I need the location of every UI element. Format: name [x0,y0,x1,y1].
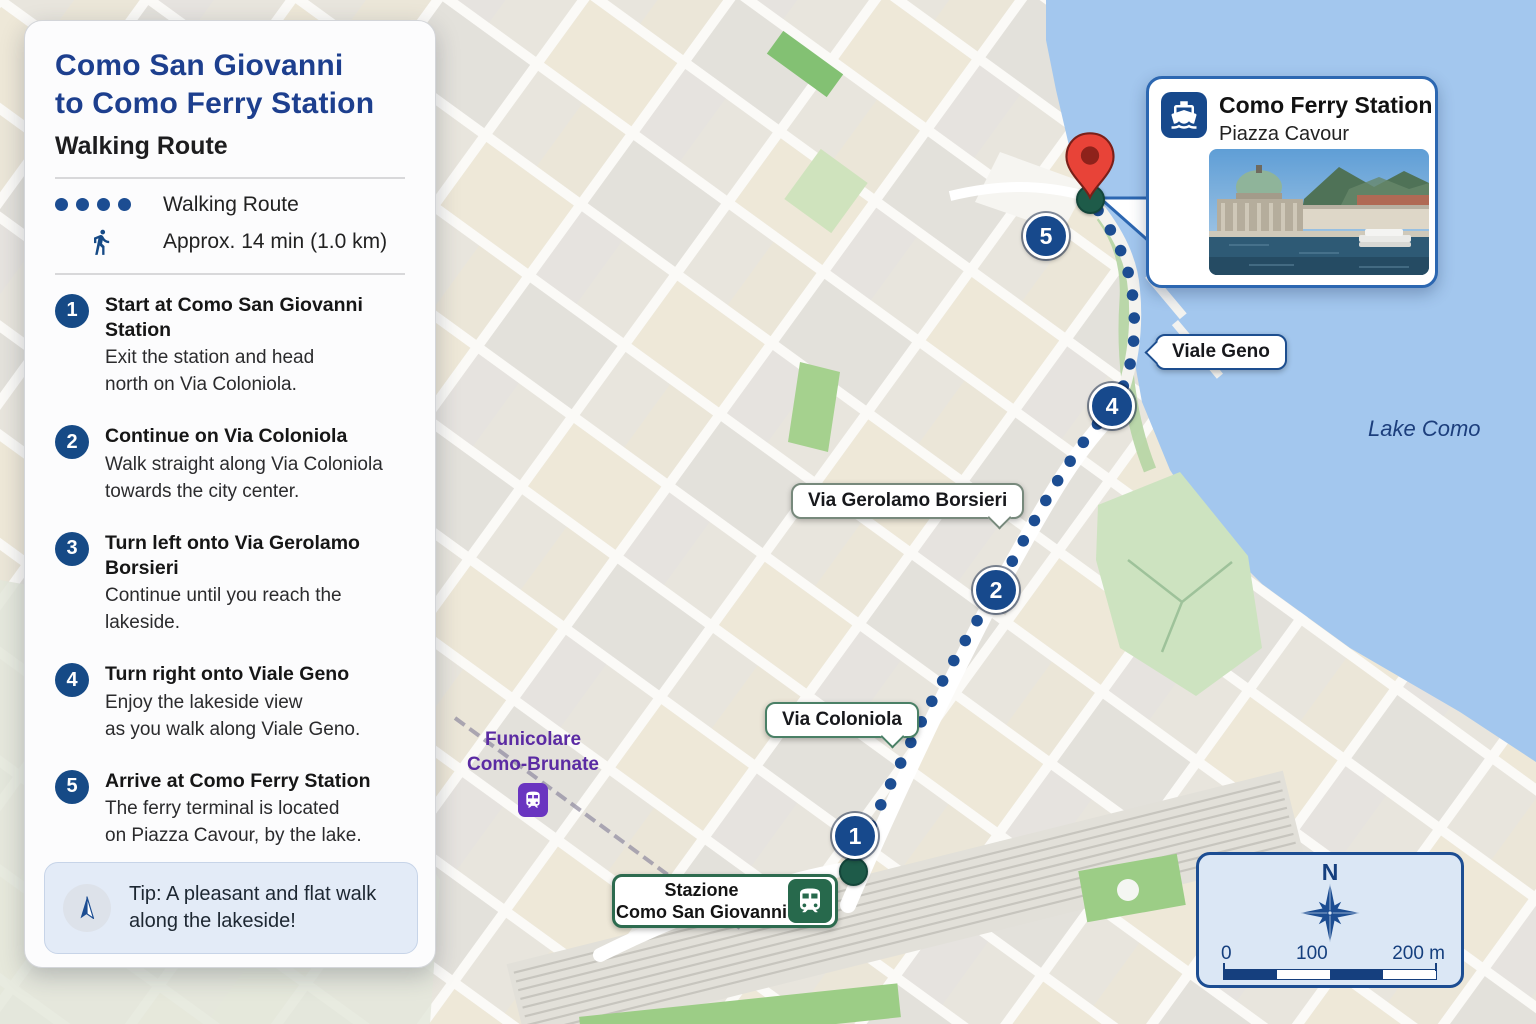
step-number-badge: 4 [55,663,89,697]
divider [55,273,405,275]
route-marker-2: 2 [973,567,1019,613]
step-item-5: 5 Arrive at Como Ferry Station The ferry… [55,769,405,850]
step-list: 1 Start at Como San Giovanni Station Exi… [55,293,405,850]
route-dots-icon [55,198,147,211]
step-item-4: 4 Turn right onto Viale Geno Enjoy the l… [55,662,405,743]
step-description: Continue until you reach the lakeside. [105,583,405,637]
route-start-dot [839,857,868,886]
stazione-label-line1: Stazione [615,879,788,902]
navigation-arrow-icon [63,884,111,932]
via-coloniola-bubble: Via Coloniola [765,702,919,738]
ferry-icon [1161,92,1207,138]
panel-subtitle: Walking Route [55,132,405,161]
panel-title-line2: to Como Ferry Station [55,87,374,120]
walking-person-icon [55,227,147,257]
step-number-badge: 1 [55,294,89,328]
route-infographic: DUOMO di Como Piazza del Duomo Teatro So… [0,0,1536,1024]
step-description: Exit the station and head north on Via C… [105,345,405,399]
compass-scale-box: N 0 100 200 m [1196,852,1464,988]
step-number-badge: 2 [55,425,89,459]
ferry-station-photo [1209,149,1429,275]
panel-title: Como San Giovanni to Como Ferry Station [55,47,405,124]
step-number-badge: 3 [55,532,89,566]
route-marker-1: 1 [832,813,878,859]
divider [55,177,405,179]
step-title: Turn right onto Viale Geno [105,662,360,687]
tip-box: Tip: A pleasant and flat walk along the … [44,862,418,954]
train-station-icon [788,879,832,923]
scale-bar [1223,969,1437,980]
ferry-station-callout: Como Ferry Station Piazza Cavour [1146,76,1438,288]
via-gerolamo-borsieri-bubble: Via Gerolamo Borsieri [791,483,1024,519]
viale-geno-text: Viale Geno [1172,341,1270,362]
destination-pin [1062,132,1118,200]
stazione-bubble: Stazione Como San Giovanni [612,874,838,928]
step-title: Turn left onto Via Gerolamo Borsieri [105,531,405,582]
funicolare-poi: Funicolare Como-Brunate [453,728,613,817]
step-item-2: 2 Continue on Via Coloniola Walk straigh… [55,424,405,505]
legend-route-label: Walking Route [163,193,299,217]
step-title: Arrive at Como Ferry Station [105,769,370,794]
panel-title-line1: Como San Giovanni [55,49,343,82]
directions-panel: Como San Giovanni to Como Ferry Station … [24,20,436,968]
legend-duration-label: Approx. 14 min (1.0 km) [163,230,387,254]
callout-subtitle: Piazza Cavour [1219,123,1432,146]
stazione-label-line2: Como San Giovanni [615,901,788,924]
lake-como-label: Lake Como [1368,416,1481,442]
step-title: Start at Como San Giovanni Station [105,293,405,344]
step-title: Continue on Via Coloniola [105,424,383,449]
step-number-badge: 5 [55,770,89,804]
via-gerolamo-borsieri-text: Via Gerolamo Borsieri [808,490,1007,511]
step-description: Enjoy the lakeside view as you walk alon… [105,690,360,744]
route-marker-4: 4 [1089,383,1135,429]
funicolare-label-line2: Como-Brunate [453,753,613,778]
legend-route-row: Walking Route [55,193,405,217]
scale-0-label: 0 [1221,943,1232,965]
funicolare-label-line1: Funicolare [453,728,613,753]
legend-duration-row: Approx. 14 min (1.0 km) [55,227,405,257]
viale-geno-bubble: Viale Geno [1155,334,1287,370]
funicular-icon [518,783,548,817]
scale-200-label: 200 m [1392,943,1445,965]
via-coloniola-text: Via Coloniola [782,709,902,730]
scale-100-label: 100 [1296,943,1328,965]
compass-rose-icon [1299,882,1361,944]
step-description: Walk straight along Via Coloniola toward… [105,452,383,506]
callout-title: Como Ferry Station [1219,92,1432,120]
step-item-1: 1 Start at Como San Giovanni Station Exi… [55,293,405,400]
step-description: The ferry terminal is located on Piazza … [105,796,370,850]
step-item-3: 3 Turn left onto Via Gerolamo Borsieri C… [55,531,405,638]
tip-text: Tip: A pleasant and flat walk along the … [129,881,376,935]
route-marker-5: 5 [1023,213,1069,259]
